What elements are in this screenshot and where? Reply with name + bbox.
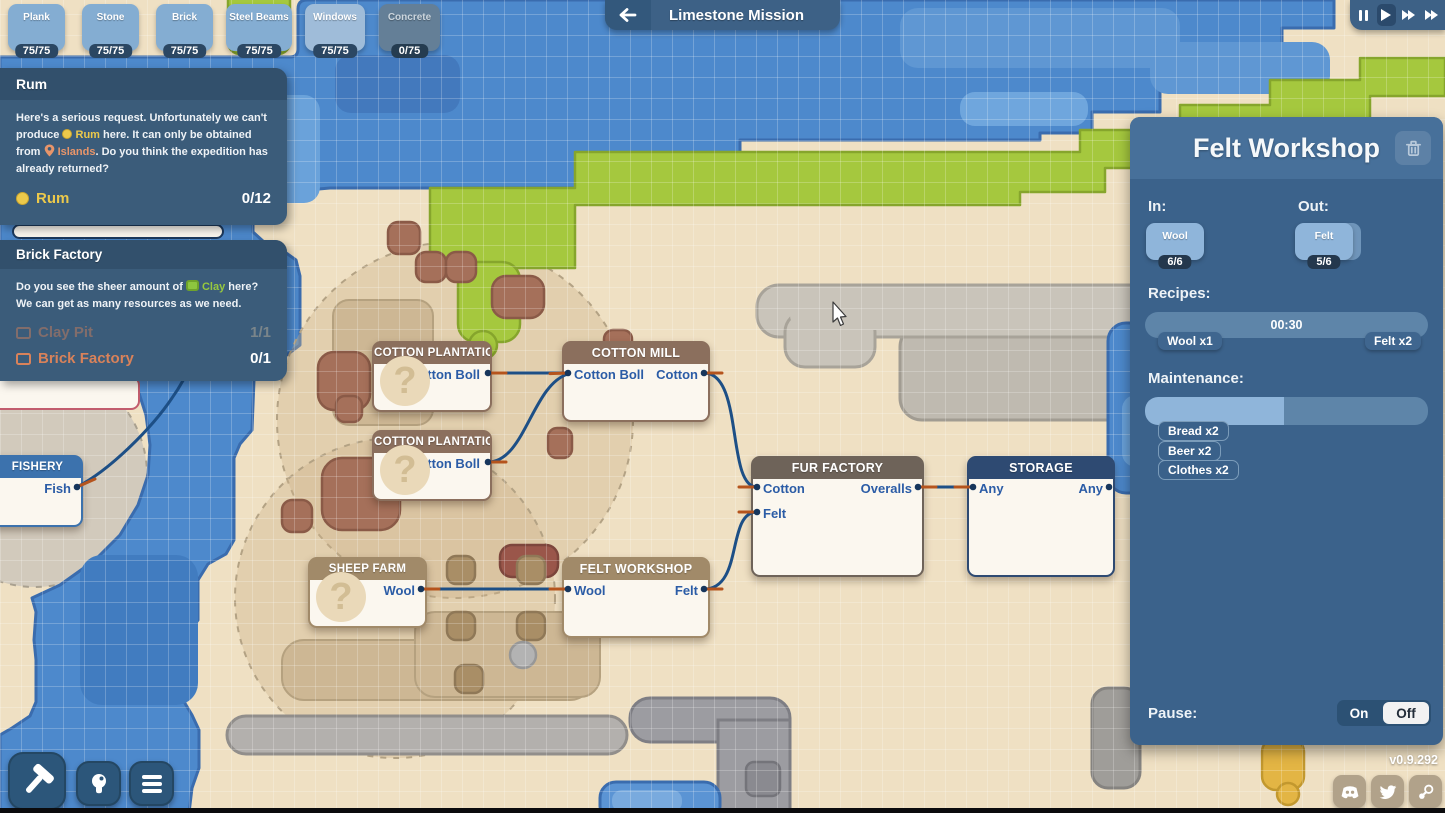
- task-label-wrap: Brick Factory: [16, 350, 134, 367]
- maintenance-item: Beer x2: [1158, 441, 1221, 461]
- task-count: 1/1: [250, 324, 271, 341]
- goal-count: 0/12: [242, 190, 271, 207]
- quest-keyword-islands: Islands: [58, 146, 96, 158]
- maintenance-item: Clothes x2: [1158, 460, 1239, 480]
- quest-task-row: Clay Pit 1/1: [16, 324, 271, 341]
- map-pin-icon: [44, 144, 55, 157]
- node-title: FUR FACTORY: [753, 458, 922, 479]
- play-icon: [1381, 9, 1391, 21]
- play-button[interactable]: [1377, 4, 1396, 26]
- port-any-out[interactable]: Any: [1078, 481, 1103, 497]
- version-label: v0.9.292: [1389, 753, 1438, 767]
- port-felt-in[interactable]: Felt: [763, 506, 786, 522]
- resource-name: Concrete: [379, 12, 440, 23]
- node-cotton-plantation-1[interactable]: COTTON PLANTATION Cotton Boll ?: [372, 341, 492, 412]
- fast-forward-button[interactable]: [1400, 4, 1419, 26]
- skip-button[interactable]: [1422, 4, 1441, 26]
- maintenance-label: Maintenance:: [1148, 370, 1244, 387]
- recipe-output-tag: Felt x2: [1365, 332, 1421, 350]
- hammer-icon: [19, 763, 55, 799]
- resource-name: Stone: [82, 12, 139, 23]
- node-cotton-plantation-2[interactable]: COTTON PLANTATION Cotton Boll ?: [372, 430, 492, 501]
- output-item-card[interactable]: Felt 5/6: [1295, 223, 1353, 260]
- mission-title: Limestone Mission: [651, 7, 840, 24]
- road: [227, 716, 627, 754]
- recipes-label: Recipes:: [1148, 285, 1211, 302]
- port-cotton-out[interactable]: Cotton: [656, 367, 698, 383]
- goal-label-wrap: Rum: [16, 190, 69, 207]
- rock: [510, 642, 536, 668]
- node-sheep-farm[interactable]: SHEEP FARM Wool ?: [308, 557, 427, 628]
- quest-title: Rum: [0, 68, 287, 100]
- back-button[interactable]: [605, 0, 651, 30]
- building-icon: [16, 353, 31, 365]
- lightbulb-icon: [87, 771, 111, 797]
- in-label: In:: [1148, 198, 1166, 215]
- resource-card-brick[interactable]: Brick 75/75: [156, 4, 213, 51]
- pause-row: Pause: On Off: [1148, 700, 1431, 726]
- road-detail: [746, 762, 780, 796]
- water-deep: [80, 555, 198, 705]
- twitter-icon: [1378, 782, 1398, 802]
- arrow-left-icon: [618, 7, 638, 23]
- resource-count: 75/75: [163, 44, 207, 58]
- item-name: Wool: [1146, 230, 1204, 242]
- discord-icon: [1339, 781, 1361, 803]
- quest-task-row: Brick Factory 0/1: [16, 350, 271, 367]
- discord-button[interactable]: [1333, 775, 1366, 808]
- quest-keyword-clay: Clay: [202, 281, 225, 293]
- resource-card-plank[interactable]: Plank 75/75: [8, 4, 65, 51]
- task-label: Brick Factory: [38, 350, 134, 367]
- hidden-node: [0, 376, 140, 410]
- menu-icon: [140, 774, 164, 794]
- port-wool-out[interactable]: Wool: [383, 583, 415, 599]
- port-overalls-out[interactable]: Overalls: [861, 481, 912, 497]
- resource-card-steel-beams[interactable]: Steel Beams 75/75: [226, 4, 292, 51]
- node-title: FELT WORKSHOP: [564, 559, 708, 580]
- rum-icon: [16, 192, 29, 205]
- steam-icon: [1415, 781, 1437, 803]
- node-storage[interactable]: STORAGE Any Any: [967, 456, 1115, 577]
- quest-body: Here's a serious request. Unfortunately …: [0, 100, 287, 178]
- node-cotton-mill[interactable]: COTTON MILL Cotton Boll Cotton: [562, 341, 710, 422]
- task-count: 0/1: [250, 350, 271, 367]
- hints-button[interactable]: [76, 761, 121, 806]
- node-title: STORAGE: [969, 458, 1113, 479]
- rum-icon: [62, 129, 72, 139]
- game-screen: FISHERY Fish COTTON PLANTATION Cotton Bo…: [0, 0, 1445, 813]
- resource-count: 75/75: [237, 44, 281, 58]
- port-wool-in[interactable]: Wool: [574, 583, 606, 599]
- mission-bar: Limestone Mission: [605, 0, 840, 30]
- task-label-wrap: Clay Pit: [16, 324, 93, 341]
- trash-icon: [1404, 139, 1423, 158]
- steam-button[interactable]: [1409, 775, 1442, 808]
- resource-count: 75/75: [89, 44, 133, 58]
- resource-count: 75/75: [15, 44, 59, 58]
- resource-count: 75/75: [313, 44, 357, 58]
- quest-title: Brick Factory: [0, 240, 287, 269]
- delete-building-button[interactable]: [1395, 131, 1431, 165]
- question-mark-icon: ?: [316, 572, 366, 622]
- out-label: Out:: [1298, 198, 1329, 215]
- water-deep: [335, 55, 460, 113]
- hidden-node: [12, 224, 224, 239]
- pause-icon: [1359, 10, 1369, 21]
- resource-name: Steel Beams: [226, 12, 292, 23]
- playback-controls: [1350, 0, 1445, 30]
- node-felt-workshop[interactable]: FELT WORKSHOP Wool Felt: [562, 557, 710, 638]
- task-label: Clay Pit: [38, 324, 93, 341]
- clay-icon: [186, 280, 199, 291]
- resource-name: Plank: [8, 12, 65, 23]
- building-icon: [16, 327, 31, 339]
- node-fur-factory[interactable]: FUR FACTORY Cotton Felt Overalls: [751, 456, 924, 577]
- build-button[interactable]: [8, 752, 66, 810]
- building-inspector-panel: Felt Workshop In: Out: Wool 6/6 Felt 5/6…: [1130, 117, 1443, 745]
- resource-name: Windows: [305, 12, 365, 23]
- port-fish-out[interactable]: Fish: [44, 481, 71, 497]
- port-cotton-boll-in[interactable]: Cotton Boll: [574, 367, 644, 383]
- quest-text: Do you see the sheer amount of: [16, 281, 186, 293]
- pause-button[interactable]: [1354, 4, 1373, 26]
- recipe-input-tag: Wool x1: [1158, 332, 1222, 350]
- skip-icon: [1425, 10, 1438, 20]
- toggle-off-option[interactable]: Off: [1383, 702, 1429, 724]
- quest-keyword-rum: Rum: [76, 129, 100, 141]
- item-count: 5/6: [1307, 255, 1340, 269]
- quest-goal-row: Rum 0/12: [16, 190, 271, 207]
- node-title: COTTON MILL: [564, 343, 708, 364]
- node-fishery[interactable]: FISHERY Fish: [0, 455, 83, 527]
- sulfur-deposit: [1262, 738, 1304, 790]
- port-any-in[interactable]: Any: [979, 481, 1004, 497]
- quest-panel-rum[interactable]: Rum Here's a serious request. Unfortunat…: [0, 68, 287, 225]
- letterbox-bar: [0, 808, 1445, 813]
- goal-label: Rum: [36, 190, 69, 207]
- sulfur-deposit: [1277, 783, 1299, 805]
- resource-count: 0/75: [391, 44, 428, 58]
- water-shallow: [900, 8, 1180, 68]
- node-title: FISHERY: [0, 457, 81, 478]
- port-cotton-in[interactable]: Cotton: [763, 481, 805, 497]
- pause-label: Pause:: [1148, 705, 1197, 722]
- question-mark-icon: ?: [380, 445, 430, 495]
- item-name: Felt: [1295, 230, 1353, 242]
- pause-toggle[interactable]: On Off: [1337, 700, 1431, 726]
- quest-panel-brick-factory[interactable]: Brick Factory Do you see the sheer amoun…: [0, 240, 287, 381]
- resource-card-stone[interactable]: Stone 75/75: [82, 4, 139, 51]
- toggle-on-option[interactable]: On: [1337, 706, 1381, 721]
- menu-button[interactable]: [129, 761, 174, 806]
- recipe-time: 00:30: [1271, 318, 1303, 332]
- question-mark-icon: ?: [380, 356, 430, 406]
- port-felt-out[interactable]: Felt: [675, 583, 698, 599]
- quest-body: Do you see the sheer amount of Clay here…: [0, 269, 287, 313]
- water-shallow: [960, 92, 1088, 126]
- resource-card-concrete[interactable]: Concrete 0/75: [379, 4, 440, 51]
- item-count: 6/6: [1158, 255, 1191, 269]
- input-item-card[interactable]: Wool 6/6: [1146, 223, 1204, 260]
- twitter-button[interactable]: [1371, 775, 1404, 808]
- fast-forward-icon: [1402, 10, 1415, 20]
- resource-name: Brick: [156, 12, 213, 23]
- resource-card-windows[interactable]: Windows 75/75: [305, 4, 365, 51]
- maintenance-item: Bread x2: [1158, 421, 1229, 441]
